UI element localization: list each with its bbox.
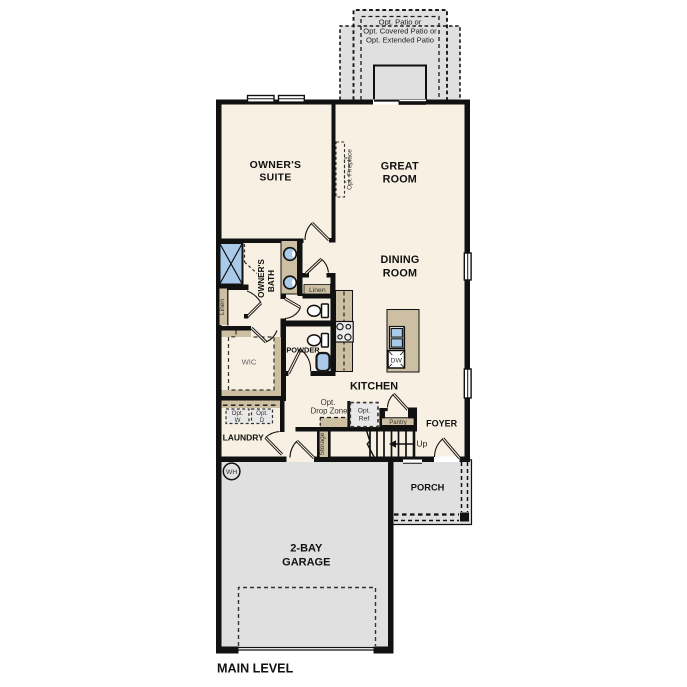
svg-text:SUITE: SUITE — [259, 173, 291, 184]
svg-text:2-BAY: 2-BAY — [290, 543, 323, 555]
svg-text:DINING: DINING — [381, 254, 420, 266]
svg-text:Opt.: Opt. — [358, 408, 371, 415]
svg-text:FOYER: FOYER — [426, 419, 458, 429]
svg-text:GREAT: GREAT — [381, 161, 419, 173]
svg-text:Linen: Linen — [309, 287, 326, 294]
svg-text:W: W — [235, 417, 241, 424]
svg-text:Drop Zone: Drop Zone — [311, 406, 348, 415]
svg-text:Linen: Linen — [219, 299, 226, 315]
svg-text:Storage: Storage — [319, 432, 326, 455]
svg-text:DW: DW — [391, 358, 403, 365]
svg-text:Opt. Patio or: Opt. Patio or — [379, 18, 422, 27]
svg-text:PORCH: PORCH — [411, 483, 445, 493]
svg-text:D: D — [260, 417, 265, 424]
svg-text:BATH: BATH — [267, 270, 276, 292]
svg-text:ROOM: ROOM — [383, 267, 417, 279]
svg-text:GARAGE: GARAGE — [282, 556, 330, 568]
svg-text:KITCHEN: KITCHEN — [350, 380, 398, 392]
svg-text:OWNER'S: OWNER'S — [250, 160, 302, 171]
svg-text:Pantry: Pantry — [389, 419, 408, 426]
svg-text:POWDER: POWDER — [286, 345, 320, 354]
svg-text:LAUNDRY: LAUNDRY — [223, 433, 265, 443]
svg-text:Ref: Ref — [359, 416, 370, 423]
svg-text:MAIN LEVEL: MAIN LEVEL — [217, 662, 294, 676]
svg-text:Up: Up — [417, 439, 428, 449]
svg-text:OWNER'S: OWNER'S — [257, 259, 266, 298]
svg-text:Opt. Fireplace: Opt. Fireplace — [347, 149, 354, 190]
svg-text:ROOM: ROOM — [383, 173, 417, 185]
svg-text:WIC: WIC — [242, 358, 257, 367]
svg-text:Opt. Covered Patio or: Opt. Covered Patio or — [363, 27, 437, 36]
svg-text:WH: WH — [226, 469, 237, 476]
svg-text:Opt. Extended Patio: Opt. Extended Patio — [366, 36, 434, 45]
